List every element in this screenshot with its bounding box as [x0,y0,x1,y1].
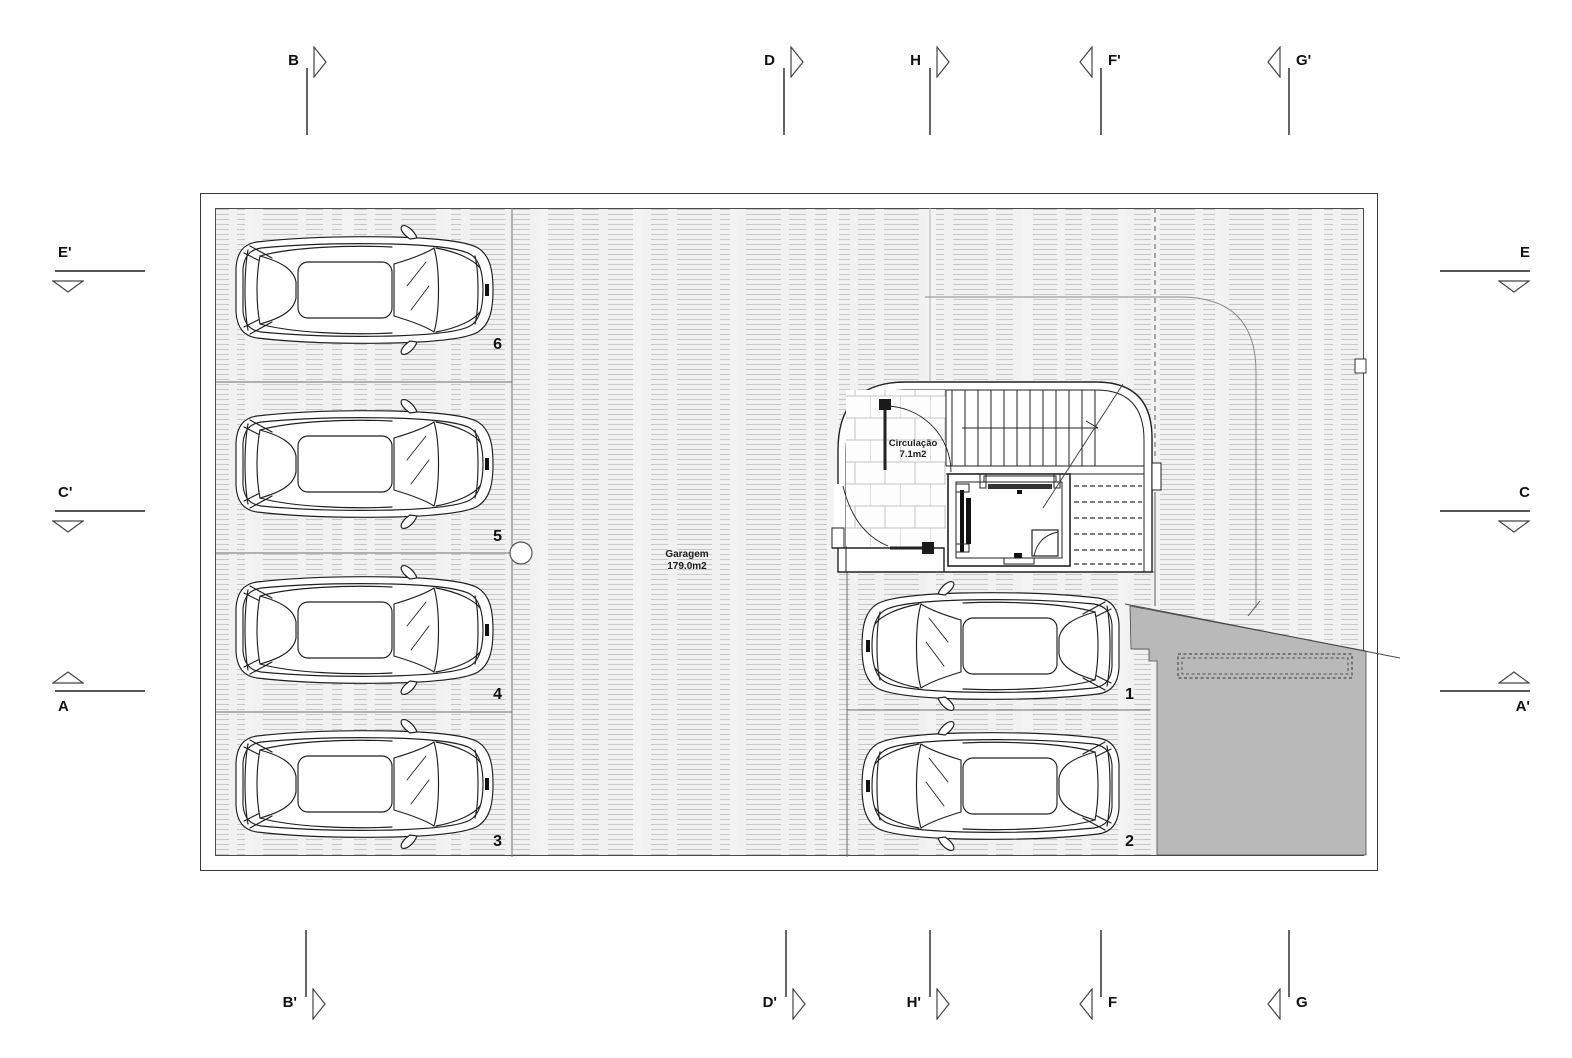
stall-number-6: 6 [472,336,502,354]
plan-drawing [0,0,1572,1058]
room-name: Garagem [627,549,747,561]
wall-pier [1355,359,1366,373]
stall-number-1: 1 [1104,686,1134,704]
room-name: Circulação [863,438,963,449]
car-stall-3 [236,720,493,849]
circulation-room-label: Circulação 7.1m2 [863,438,963,460]
stall-number-2: 2 [1104,833,1134,851]
garage-room-label: Garagem 179.0m2 [627,549,747,573]
floor-plan-canvas: B D H F' G' B' D' H' F [0,0,1572,1058]
elevator [948,474,1070,566]
elevator-rail [966,498,971,544]
stair-block [832,382,1161,572]
car-stall-6 [236,226,493,355]
stall-number-3: 3 [472,833,502,851]
stall-number-4: 4 [472,686,502,704]
ramp-slab [1125,604,1400,855]
room-area: 7.1m2 [863,449,963,460]
car-stall-5 [236,400,493,529]
car-stall-1 [862,582,1119,711]
elevator-rail [960,490,964,552]
column [510,542,532,564]
room-area: 179.0m2 [627,561,747,573]
wall-pilaster [1152,463,1161,490]
circulation-tiles [846,390,946,546]
stall-number-5: 5 [472,528,502,546]
car-stall-2 [862,722,1119,851]
car-stall-4 [236,566,493,695]
